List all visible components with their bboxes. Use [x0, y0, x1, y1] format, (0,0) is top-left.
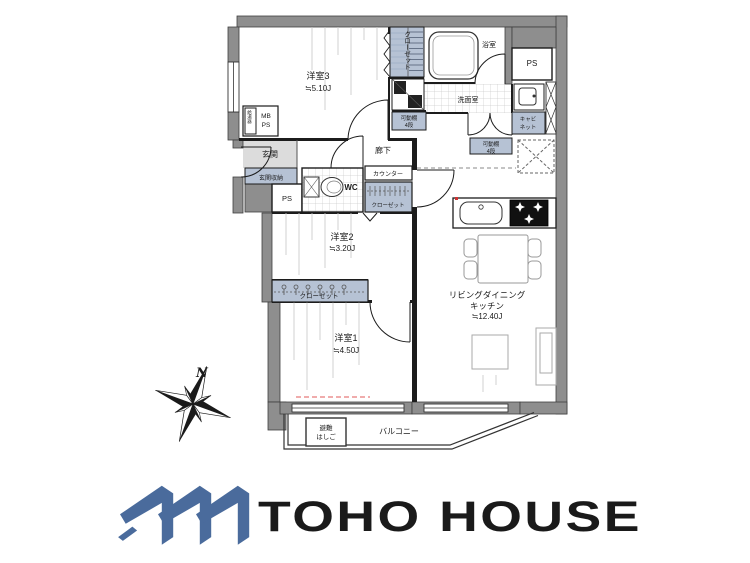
- balcony-label: バルコニー: [379, 427, 419, 436]
- kitchen-counter: [453, 197, 556, 228]
- cabinet-label-line1: キャビ: [520, 115, 537, 123]
- shelf-right-label-line2: 4段: [487, 147, 496, 155]
- cabinet-label-line2: ネット: [520, 124, 537, 131]
- escape-hatch-label-line1: 避難: [320, 423, 334, 432]
- dining-set: [464, 235, 541, 283]
- toho-house-logo: TOHO HOUSE: [118, 486, 642, 545]
- ps-top-label: PS: [527, 59, 538, 68]
- corridor-label: 廊下: [375, 145, 391, 155]
- toho-house-logo-text: TOHO HOUSE: [258, 493, 642, 541]
- kitchen-sink: [460, 202, 502, 224]
- refrigerator-space: [518, 140, 554, 173]
- tv-board-inner: [540, 333, 552, 373]
- chair: [528, 261, 541, 279]
- bedroom2-label: 洋室2: [330, 231, 353, 242]
- compass-rose: [142, 353, 245, 456]
- entrance-storage-label: 玄関収納: [259, 174, 283, 182]
- washer-space: [392, 79, 424, 110]
- bedroom2-door-symbol: [363, 213, 377, 221]
- shelf-right-label-line1: 可動棚: [483, 140, 500, 148]
- utility-fixture: [514, 84, 544, 110]
- washroom-label: 洗面室: [458, 95, 479, 104]
- chair: [464, 239, 477, 257]
- shelf-left-label-line1: 可動棚: [401, 114, 418, 122]
- bedroom1-door: [370, 302, 410, 342]
- ldk-door: [417, 170, 454, 207]
- bedroom1-label: 洋室1: [334, 332, 357, 343]
- stove: [510, 200, 548, 226]
- toho-house-logomark: [118, 486, 249, 545]
- kitchen-marker: [455, 197, 458, 200]
- bedroom3-label: 洋室3: [306, 70, 329, 81]
- bedroom3-area: ≒5.10J: [305, 84, 331, 93]
- washroom-door-right: [490, 113, 512, 135]
- bathroom-label: 浴室: [482, 40, 496, 49]
- closet-mid-label: クローゼット: [371, 201, 404, 209]
- duct-space: [546, 82, 556, 134]
- sofa-outline: [472, 335, 508, 369]
- floor-plan-image: N 洋室3 ≒5.10J 洋室2 ≒3.20J 洋室1 ≒4.50J リビングダ…: [0, 0, 750, 563]
- ps-hall-label: PS: [282, 194, 292, 203]
- chair: [464, 261, 477, 279]
- escape-hatch-box: [306, 418, 346, 446]
- escape-hatch-label-line2: はしご: [316, 432, 336, 441]
- dining-table: [478, 235, 528, 283]
- shelf-left-label-line2: 4段: [405, 121, 414, 129]
- closet-bottom-label: クローゼット: [300, 291, 339, 300]
- washroom-door-left: [468, 113, 490, 135]
- ldk-label-line1: リビングダイニング: [449, 290, 526, 300]
- bedroom2-area: ≒3.20J: [329, 244, 355, 253]
- water-heater-label: 給湯器: [247, 109, 253, 125]
- ldk-label-line2: キッチン: [470, 301, 504, 311]
- wc-label: WC: [344, 183, 358, 192]
- bedroom1-area: ≒4.50J: [333, 346, 359, 355]
- ldk-area: ≒12.40J: [472, 312, 503, 321]
- entrance-label: 玄関: [262, 149, 278, 159]
- floorplan-page: N 洋室3 ≒5.10J 洋室2 ≒3.20J 洋室1 ≒4.50J リビングダ…: [0, 0, 750, 563]
- tv-board: [536, 328, 556, 385]
- counter-label: カウンター: [373, 170, 403, 178]
- meter-box-label-line1: MB: [261, 113, 271, 120]
- bathtub: [429, 32, 478, 79]
- living-furniture: [472, 328, 556, 385]
- chair: [528, 239, 541, 257]
- meter-box-label-line2: PS: [262, 122, 271, 129]
- compass-north-label: N: [195, 366, 209, 381]
